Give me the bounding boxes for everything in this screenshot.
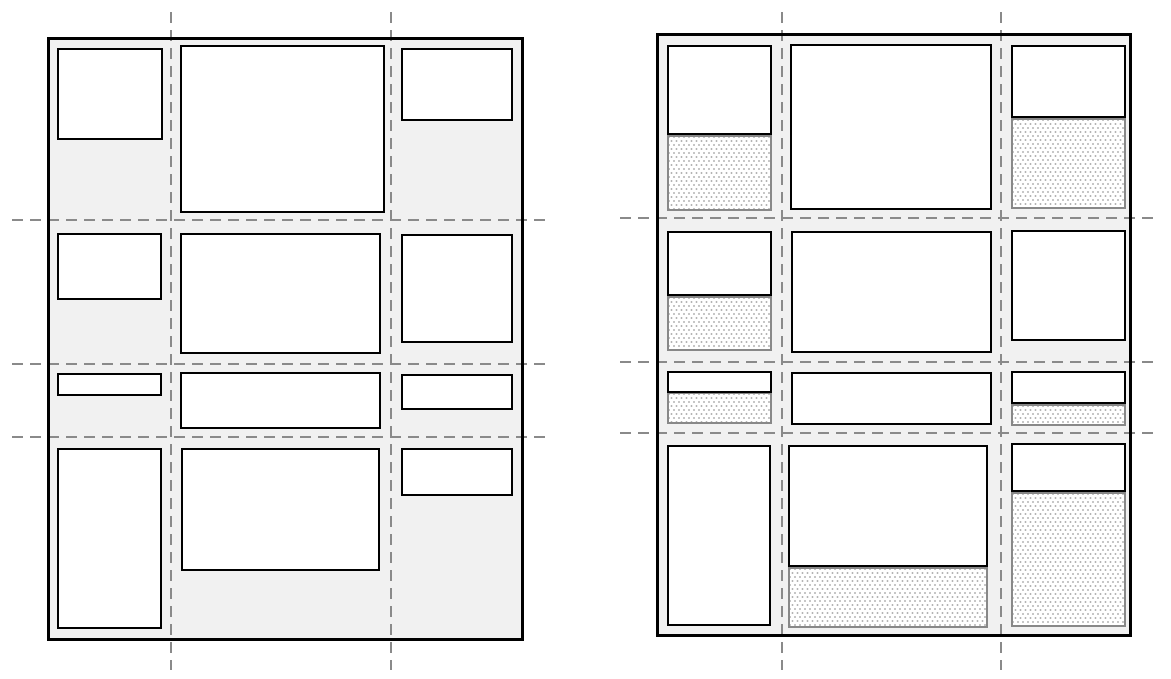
right-grid-item-8 [791, 372, 992, 425]
right-grid-area-extent-3 [667, 296, 772, 351]
right-grid-area-extent-5 [1011, 404, 1126, 426]
left-grid-item-5 [180, 233, 381, 354]
left-grid-item-4 [57, 233, 162, 300]
right-grid-item-11 [788, 445, 988, 567]
diagram-stage [0, 0, 1171, 679]
right-grid-item-6 [1011, 230, 1126, 341]
left-grid-item-3 [401, 48, 513, 121]
right-grid-item-7 [667, 371, 772, 393]
right-grid-area-extent-7 [1011, 492, 1126, 627]
left-grid-item-11 [181, 448, 380, 571]
right-grid-area-extent-6 [788, 567, 988, 628]
right-grid-item-3 [1011, 45, 1126, 118]
left-grid-item-1 [57, 48, 163, 140]
left-grid-item-8 [180, 372, 381, 429]
left-grid-item-10 [57, 448, 162, 629]
right-grid-item-2 [790, 44, 992, 210]
right-grid-area-extent-4 [667, 392, 772, 424]
right-grid-area-extent-2 [1011, 118, 1126, 209]
right-grid-item-5 [791, 231, 992, 353]
left-grid-item-12 [401, 448, 513, 496]
right-grid-item-4 [667, 231, 772, 296]
left-grid-item-7 [57, 373, 162, 396]
right-grid-item-1 [667, 45, 772, 135]
right-grid-item-9 [1011, 371, 1126, 404]
right-grid-area-extent-1 [667, 135, 772, 211]
right-grid-item-12 [1011, 443, 1126, 492]
right-grid-item-10 [667, 445, 771, 626]
left-grid-item-2 [180, 45, 385, 213]
left-grid-item-6 [401, 234, 513, 343]
left-grid-item-9 [401, 374, 513, 410]
